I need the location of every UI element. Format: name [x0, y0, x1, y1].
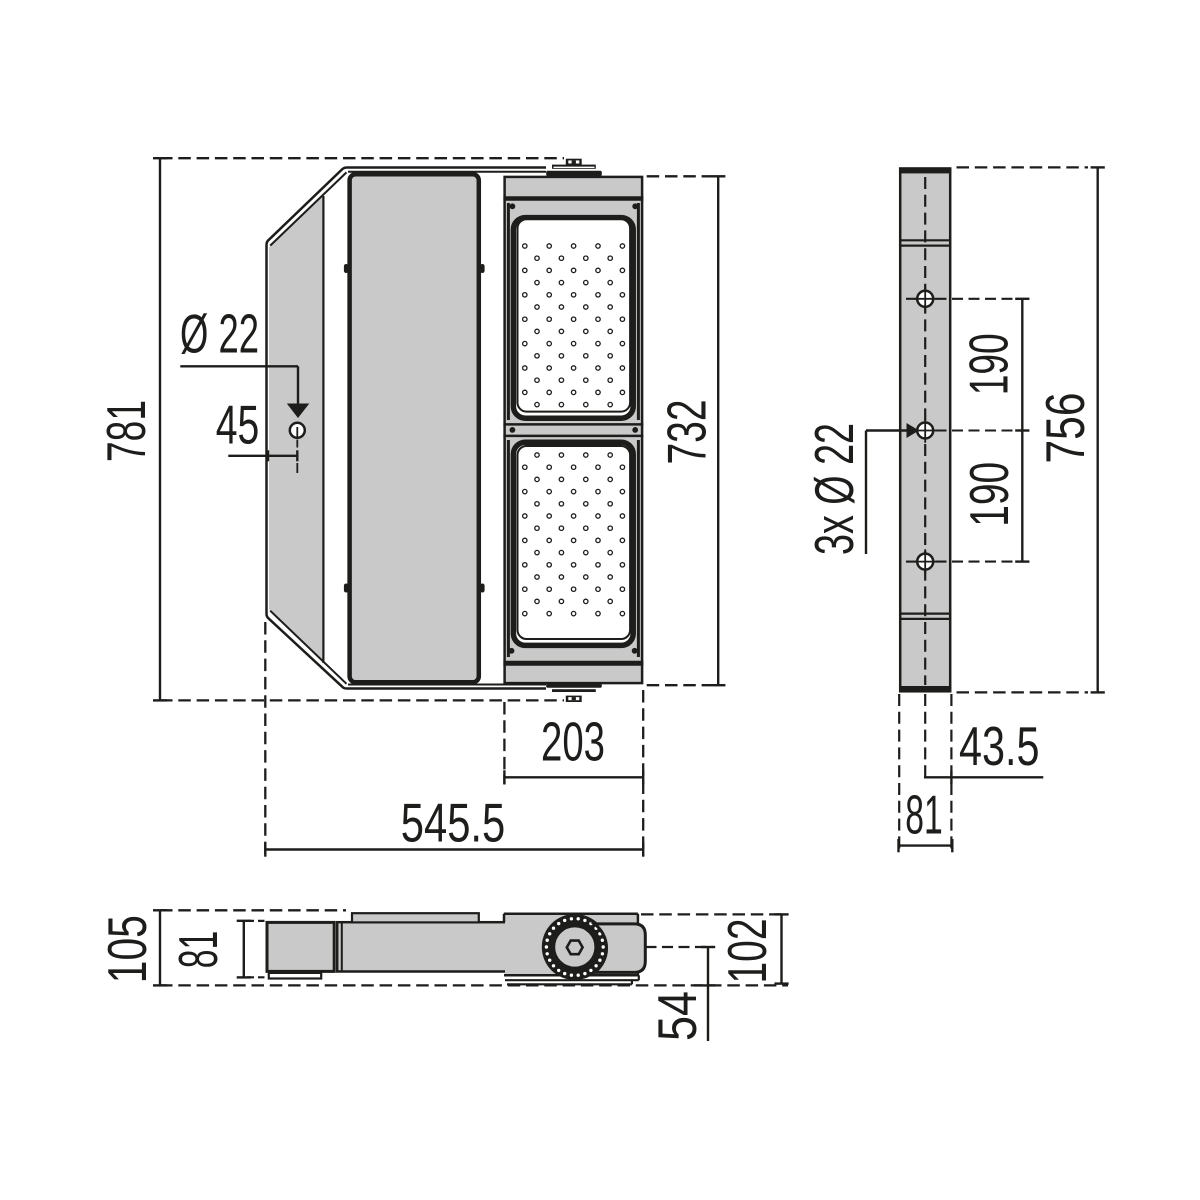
svg-text:190: 190: [958, 333, 1020, 395]
svg-text:781: 781: [95, 400, 157, 462]
svg-text:81: 81: [167, 931, 229, 969]
svg-text:43.5: 43.5: [959, 715, 1040, 777]
svg-text:105: 105: [96, 915, 158, 983]
svg-text:81: 81: [905, 784, 943, 846]
svg-text:102: 102: [716, 919, 778, 984]
svg-text:756: 756: [1034, 393, 1096, 464]
svg-text:54: 54: [646, 991, 708, 1041]
svg-text:3x Ø 22: 3x Ø 22: [803, 423, 865, 555]
svg-text:Ø 22: Ø 22: [180, 303, 259, 365]
svg-text:732: 732: [656, 400, 718, 465]
svg-text:45: 45: [216, 394, 260, 456]
svg-text:190: 190: [958, 462, 1020, 527]
svg-text:545.5: 545.5: [401, 791, 506, 853]
svg-text:203: 203: [541, 711, 605, 773]
